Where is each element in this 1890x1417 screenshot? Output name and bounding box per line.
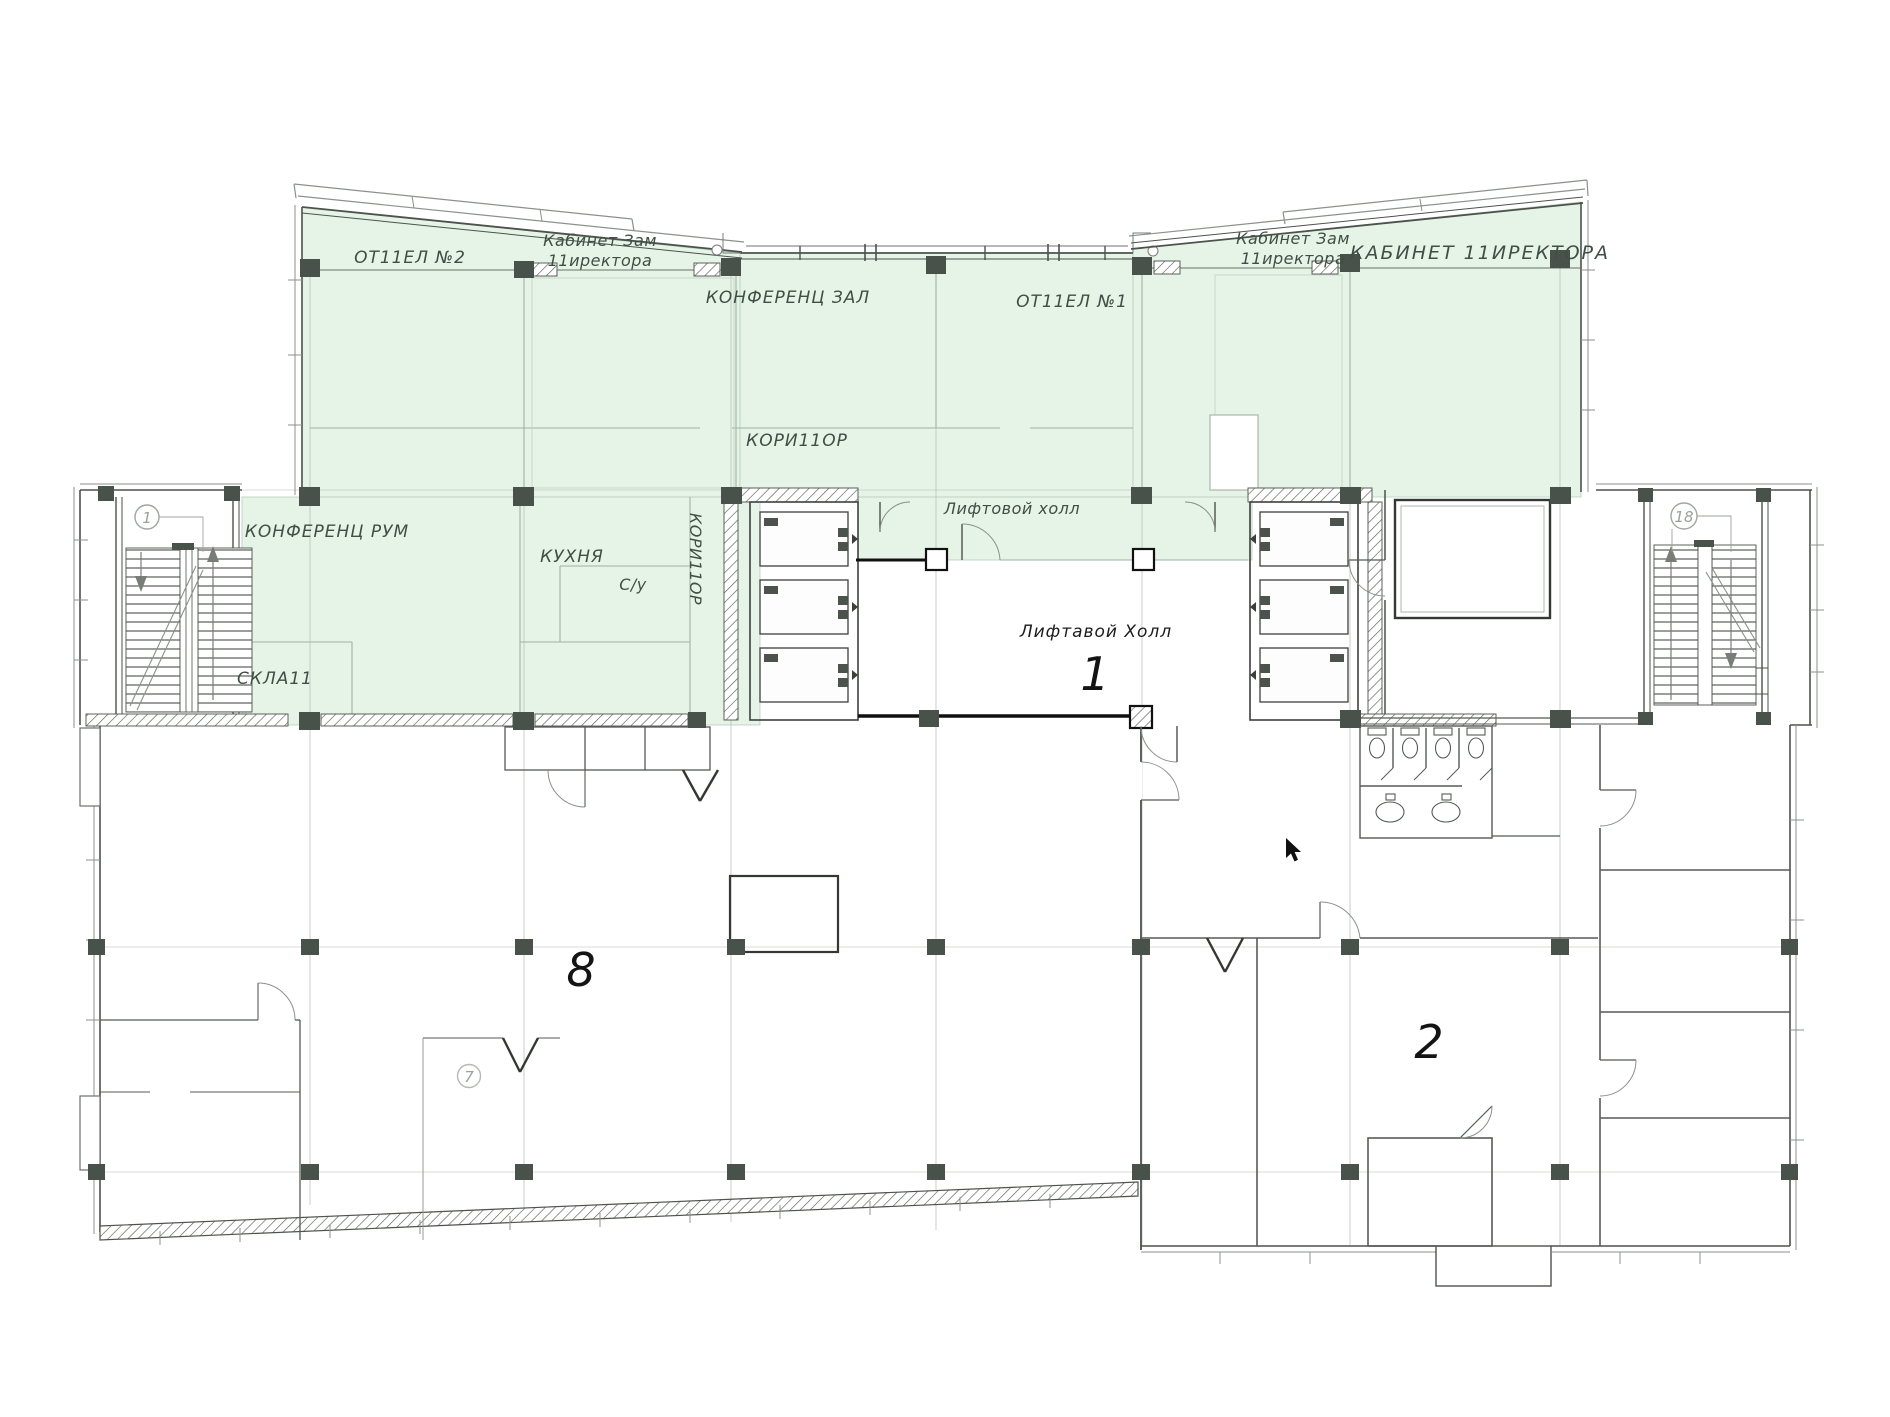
zone-number-open-area: 8 (566, 943, 595, 997)
open-area-walls (100, 727, 838, 1240)
axis-bubble-left-label: 1 (142, 509, 152, 527)
label-sklad: СКЛА11 (237, 669, 313, 689)
zone-number-right: 2 (1414, 1015, 1443, 1069)
label-kab-zam-left-1: Кабинет Зам (543, 231, 657, 250)
stairs-left (116, 497, 252, 714)
label-koridor-vertical: КОРИ11ОР (686, 513, 705, 605)
label-kab-zam-right-1: Кабинет Зам (1236, 229, 1350, 248)
label-otdel-1: ОТ11ЕЛ №1 (1016, 292, 1128, 312)
axis-bubble-right-label: 18 (1674, 508, 1693, 526)
label-lift-hall-green: Лифтовой холл (943, 499, 1080, 518)
label-su: С/у (619, 575, 647, 594)
label-otdel-2: ОТ11ЕЛ №2 (354, 248, 466, 268)
zone-number-lift-hall: 1 (1080, 647, 1109, 701)
label-kuhnya: КУХНЯ (540, 547, 604, 567)
label-kabinet-direktora: КАБИНЕТ 11ИРЕКТОРА (1350, 242, 1610, 264)
label-konferenc-rum: КОНФЕРЕНЦ РУМ (245, 522, 409, 542)
label-konferenc-zal: КОНФЕРЕНЦ ЗАЛ (706, 288, 870, 308)
elevator-bank-left (750, 502, 858, 720)
floor-plan-drawing: 1 18 7 ОТ11ЕЛ №2 Кабинет Зам 11иректора … (0, 0, 1890, 1417)
label-lift-hall-main: Лифтавой Холл (1019, 622, 1172, 642)
elevator-bank-right (1250, 502, 1358, 720)
sink-fixtures (1376, 794, 1460, 822)
floor-plan-canvas: 1 18 7 ОТ11ЕЛ №2 Кабинет Зам 11иректора … (0, 0, 1890, 1417)
label-kab-zam-left-2: 11иректора (548, 251, 653, 270)
toilet-block (1360, 726, 1492, 838)
label-kab-zam-right-2: 11иректора (1241, 249, 1346, 268)
axis-bubble-mid-label: 7 (464, 1068, 474, 1086)
label-koridor-top: КОРИ11ОР (746, 431, 848, 451)
mouse-cursor-icon (1286, 838, 1301, 862)
stairs-right (1644, 497, 1768, 714)
